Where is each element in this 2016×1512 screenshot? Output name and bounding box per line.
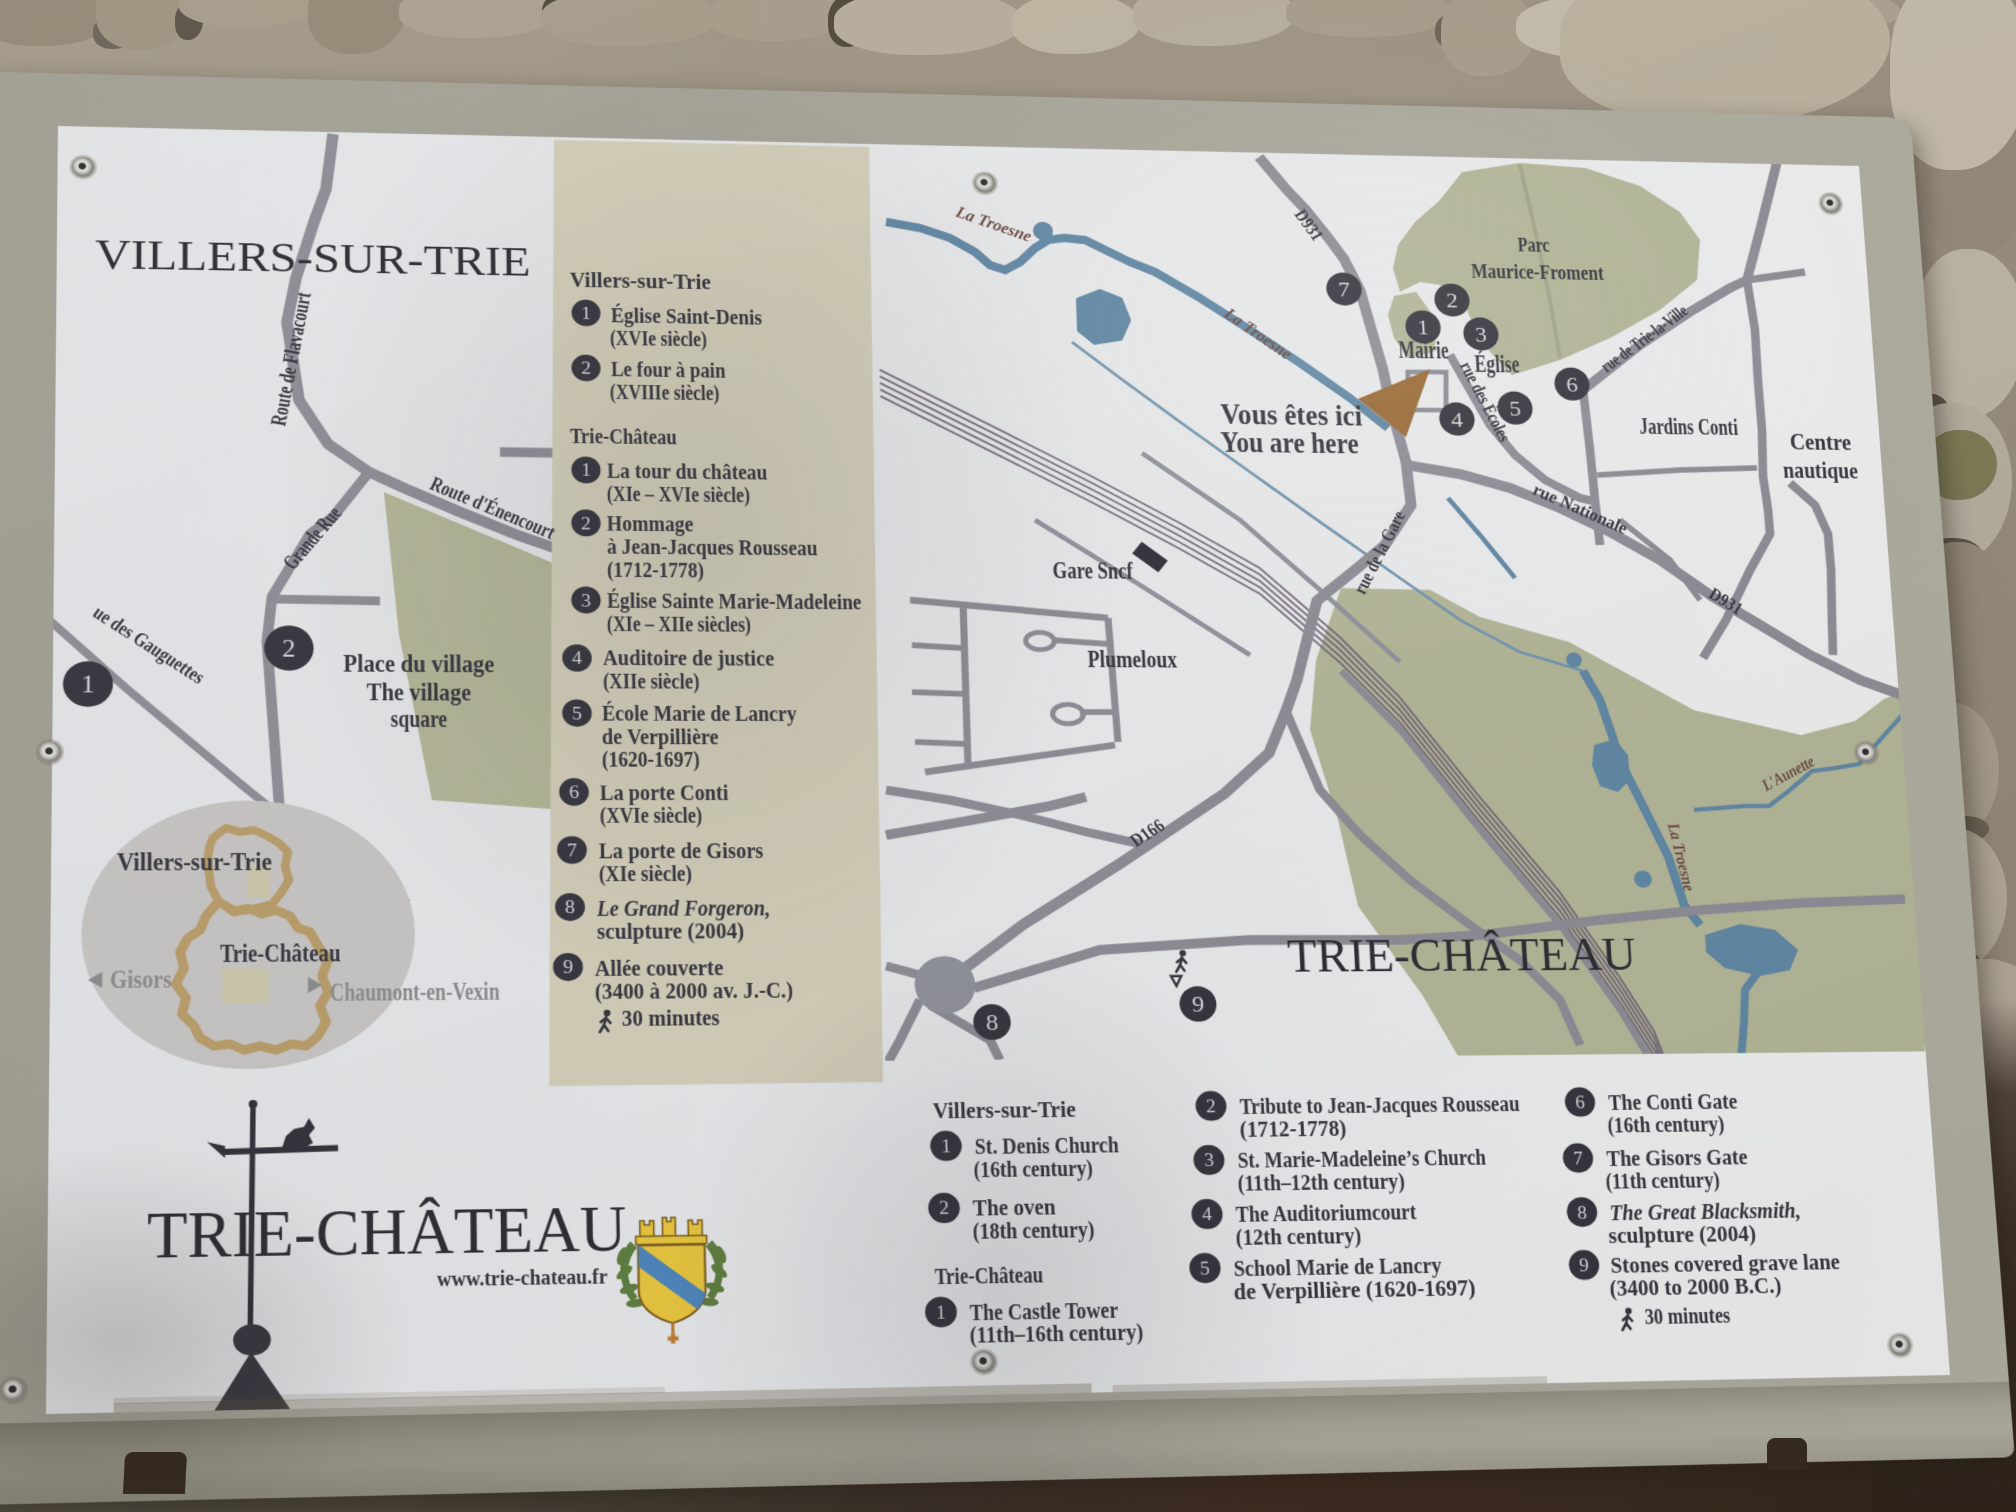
svg-text:(1620-1697): (1620-1697): [602, 747, 700, 773]
svg-text:Trie-Château: Trie-Château: [934, 1262, 1043, 1290]
svg-text:Auditoire de justice: Auditoire de justice: [603, 646, 775, 672]
svg-text:Plumeloux: Plumeloux: [1087, 645, 1177, 673]
svg-text:sculpture (2004): sculpture (2004): [597, 919, 745, 945]
svg-text:(11th–16th century): (11th–16th century): [969, 1320, 1143, 1350]
svg-text:4: 4: [572, 649, 583, 669]
svg-text:2: 2: [939, 1198, 950, 1219]
svg-text:5: 5: [572, 704, 582, 724]
svg-text:Trie-Château: Trie-Château: [220, 938, 341, 968]
svg-text:sculpture (2004): sculpture (2004): [1608, 1221, 1757, 1249]
svg-text:de Verpillière: de Verpillière: [602, 725, 719, 751]
svg-text:(1712-1778): (1712-1778): [607, 558, 704, 584]
svg-text:(XIIe siècle): (XIIe siècle): [603, 669, 700, 695]
svg-text:3: 3: [1474, 323, 1487, 347]
svg-text:30 minutes: 30 minutes: [622, 1005, 720, 1032]
svg-text:(XIe siècle): (XIe siècle): [599, 861, 693, 887]
svg-text:9: 9: [1579, 1256, 1590, 1277]
svg-text:3: 3: [581, 591, 591, 611]
svg-text:(3400 to 2000 B.C.): (3400 to 2000 B.C.): [1609, 1273, 1782, 1302]
svg-text:nautique: nautique: [1782, 457, 1859, 484]
svg-text:2: 2: [1446, 289, 1459, 313]
svg-text:Gisors: Gisors: [110, 964, 172, 994]
svg-text:École Marie de Lancry: École Marie de Lancry: [602, 702, 797, 728]
svg-text:(18th century): (18th century): [972, 1217, 1094, 1245]
svg-text:TRIE-CHÂTEAU: TRIE-CHÂTEAU: [147, 1193, 627, 1273]
svg-text:TRIE-CHÂTEAU: TRIE-CHÂTEAU: [1286, 930, 1637, 983]
svg-text:(XIe – XIIe siècles): (XIe – XIIe siècles): [607, 612, 752, 638]
svg-text:8: 8: [985, 1010, 998, 1036]
svg-text:1: 1: [941, 1136, 952, 1157]
svg-text:1: 1: [936, 1302, 947, 1324]
svg-text:(1712-1778): (1712-1778): [1239, 1116, 1347, 1143]
svg-text:de Verpillière (1620-1697): de Verpillière (1620-1697): [1233, 1275, 1476, 1305]
svg-text:2: 2: [1206, 1097, 1217, 1118]
svg-text:rue de la Gare: rue de la Gare: [1350, 508, 1410, 598]
svg-text:6: 6: [1575, 1093, 1586, 1114]
svg-text:Parc: Parc: [1517, 233, 1550, 257]
svg-text:VILLERS-SUR-TRIE: VILLERS-SUR-TRIE: [95, 230, 531, 285]
svg-text:square: square: [391, 706, 448, 733]
svg-text:1: 1: [581, 461, 591, 481]
svg-text:7: 7: [567, 841, 577, 862]
svg-text:D931: D931: [1290, 206, 1327, 244]
svg-text:Gare Sncf: Gare Sncf: [1052, 556, 1133, 584]
svg-text:(12th century): (12th century): [1235, 1223, 1362, 1251]
svg-text:The village: The village: [367, 679, 472, 706]
svg-text:9: 9: [1191, 992, 1204, 1018]
svg-text:Villers-sur-Trie: Villers-sur-Trie: [570, 268, 712, 295]
svg-text:1: 1: [581, 304, 591, 324]
svg-text:Trie-Château: Trie-Château: [570, 424, 677, 450]
svg-text:9: 9: [563, 957, 573, 978]
svg-text:Villers-sur-Trie: Villers-sur-Trie: [117, 849, 272, 876]
svg-text:6: 6: [569, 783, 579, 804]
svg-text:La Troesne: La Troesne: [953, 202, 1034, 245]
svg-text:rue Nationale: rue Nationale: [1530, 480, 1630, 538]
svg-text:Place du village: Place du village: [343, 651, 494, 678]
svg-text:2: 2: [581, 514, 591, 534]
svg-text:(11th century): (11th century): [1605, 1168, 1721, 1195]
svg-text:30 minutes: 30 minutes: [1644, 1303, 1731, 1330]
svg-text:www.trie-chateau.fr: www.trie-chateau.fr: [437, 1264, 608, 1291]
svg-text:(XVIIIe siècle): (XVIIIe siècle): [610, 380, 720, 406]
svg-text:Centre: Centre: [1789, 429, 1852, 456]
svg-text:La porte Conti: La porte Conti: [600, 780, 729, 806]
svg-text:Jardins Conti: Jardins Conti: [1639, 413, 1739, 441]
svg-text:La porte de Gisors: La porte de Gisors: [599, 838, 764, 864]
svg-text:Chaumont-en-Vexin: Chaumont-en-Vexin: [330, 977, 500, 1007]
svg-text:4: 4: [1450, 408, 1463, 432]
svg-text:5: 5: [1509, 397, 1522, 421]
svg-text:6: 6: [1566, 373, 1579, 397]
svg-text:8: 8: [565, 897, 575, 918]
svg-text:1: 1: [81, 672, 95, 699]
svg-text:8: 8: [1577, 1203, 1588, 1224]
svg-text:3: 3: [1204, 1151, 1215, 1172]
svg-text:Maurice-Froment: Maurice-Froment: [1470, 259, 1604, 285]
svg-text:7: 7: [1338, 278, 1351, 302]
svg-text:Le four à pain: Le four à pain: [611, 357, 727, 383]
svg-text:Villers-sur-Trie: Villers-sur-Trie: [932, 1097, 1076, 1124]
svg-text:(11th–12th century): (11th–12th century): [1237, 1169, 1405, 1197]
svg-text:2: 2: [282, 636, 295, 662]
svg-text:(16th century): (16th century): [1607, 1112, 1725, 1139]
svg-text:2: 2: [581, 359, 591, 379]
svg-text:4: 4: [1202, 1204, 1213, 1225]
svg-text:(XVIe siècle): (XVIe siècle): [610, 326, 707, 352]
svg-text:La Troesne: La Troesne: [1220, 304, 1296, 363]
svg-text:You are here: You are here: [1220, 426, 1359, 460]
svg-text:Tribute to Jean-Jacques Rousse: Tribute to Jean-Jacques Rousseau: [1239, 1091, 1520, 1120]
svg-text:(XVIe siècle): (XVIe siècle): [600, 803, 703, 829]
svg-text:(XIe – XVIe siècle): (XIe – XVIe siècle): [607, 482, 751, 508]
svg-text:7: 7: [1573, 1149, 1584, 1170]
svg-text:5: 5: [1200, 1258, 1211, 1279]
svg-text:Hommage: Hommage: [607, 512, 694, 538]
svg-text:(3400 à 2000 av. J.-C.): (3400 à 2000 av. J.-C.): [595, 978, 794, 1005]
svg-text:1: 1: [1417, 316, 1430, 340]
svg-text:Grande Rue: Grande Rue: [277, 502, 346, 573]
svg-text:(16th century): (16th century): [973, 1156, 1093, 1184]
